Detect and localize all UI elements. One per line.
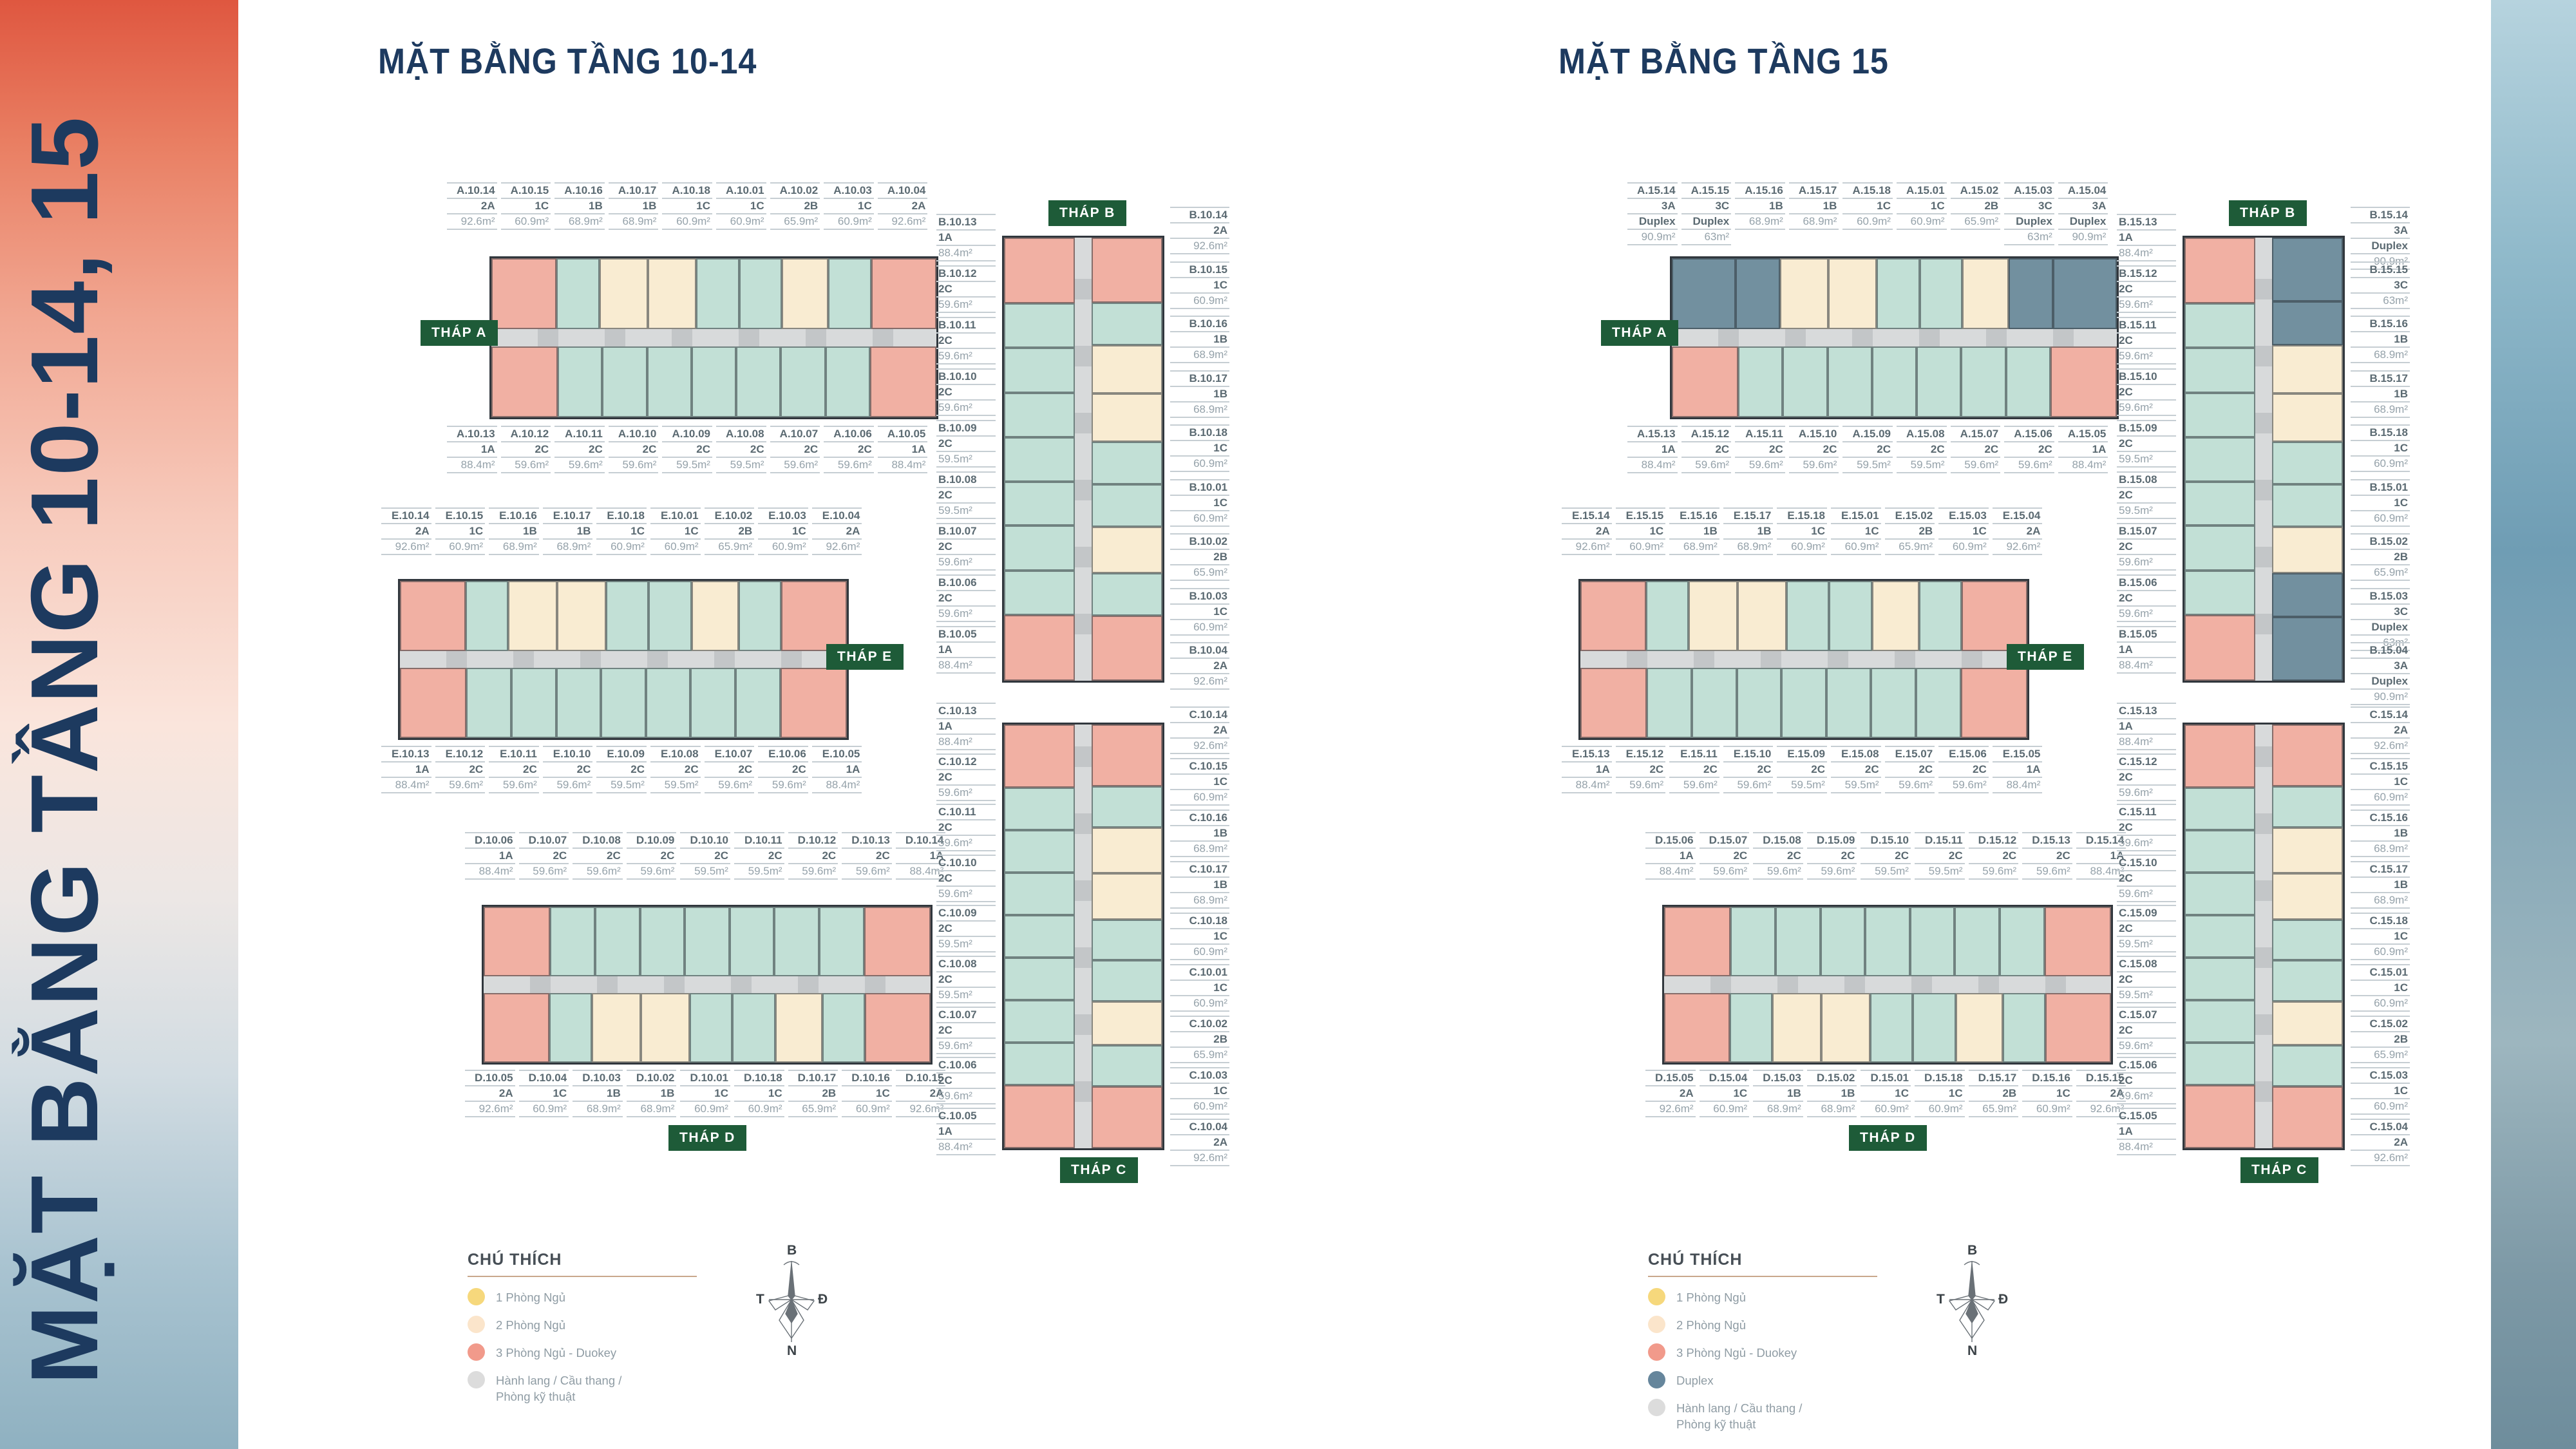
unit-id: B.10.06 — [936, 574, 996, 590]
unit-label: B.15.112C59.6m² — [2117, 317, 2176, 365]
unit-type: 2C — [2117, 538, 2176, 554]
unit-id: B.15.13 — [2117, 214, 2176, 229]
unit-label: C.15.102C59.6m² — [2117, 855, 2176, 902]
unit-area: 68.9m² — [1735, 213, 1785, 230]
unit-id: D.10.18 — [734, 1070, 784, 1085]
unit-area: 59.5m² — [1831, 777, 1881, 793]
unit-type: 1C — [1915, 1085, 1965, 1101]
unit-label: A.10.082C59.5m² — [716, 426, 766, 473]
unit-id: A.15.14 — [1627, 182, 1678, 198]
unit-id: C.15.15 — [2351, 758, 2410, 773]
plan-unit — [2184, 482, 2255, 526]
unit-label: B.15.131A88.4m² — [2117, 214, 2176, 261]
unit-area: 59.6m² — [936, 885, 996, 902]
unit-area: 59.6m² — [554, 457, 605, 473]
unit-type: 1A — [2117, 641, 2176, 657]
plan-unit — [1872, 346, 1917, 417]
unit-area: 60.9m² — [1842, 213, 1893, 230]
unit-label: D.15.132C59.6m² — [2022, 832, 2072, 880]
plan-unit — [557, 581, 606, 651]
unit-area: 59.6m² — [2117, 1088, 2176, 1104]
unit-label: E.10.151C60.9m² — [435, 507, 486, 555]
unit-type: 2C — [936, 590, 996, 605]
unit-id: E.15.17 — [1723, 507, 1774, 523]
legend-title: CHÚ THÍCH — [468, 1251, 777, 1269]
unit-area: 68.9m² — [2351, 840, 2410, 857]
tower-C-right-units — [2272, 724, 2343, 1148]
unit-area: 68.9m² — [543, 538, 593, 555]
plan-unit — [2045, 907, 2111, 976]
unit-type: 1C — [680, 1085, 730, 1101]
plan-unit — [2272, 573, 2343, 617]
unit-label: E.15.082C59.5m² — [1831, 746, 1881, 793]
unit-id: C.15.02 — [2351, 1016, 2410, 1031]
tower-badge-D: THÁP D — [1849, 1125, 1927, 1151]
unit-label: E.15.062C59.6m² — [1938, 746, 1989, 793]
unit-type: 2A — [1170, 1134, 1229, 1150]
unit-id: B.10.08 — [936, 471, 996, 487]
unit-area: 59.6m² — [936, 399, 996, 416]
compass-north-label: B — [1967, 1243, 1977, 1258]
unit-label: D.10.132C59.6m² — [842, 832, 892, 880]
unit-id: C.10.06 — [936, 1057, 996, 1072]
unit-id: D.15.07 — [1700, 832, 1750, 848]
unit-area: 88.4m² — [1993, 777, 2043, 793]
unit-label: A.15.102C59.6m² — [1789, 426, 1839, 473]
unit-label: E.15.022B65.9m² — [1885, 507, 1935, 555]
plan-unit — [1910, 907, 1955, 976]
unit-label: B.10.171B68.9m² — [1170, 370, 1229, 418]
plan-unit — [511, 668, 556, 738]
unit-id: C.15.17 — [2351, 861, 2410, 876]
legend-item: Duplex — [1648, 1371, 1714, 1388]
unit-id: E.15.18 — [1777, 507, 1827, 523]
unit-type: 2C — [519, 848, 569, 863]
unit-area: 92.6m² — [2351, 737, 2410, 754]
unit-type: 1C — [2351, 980, 2410, 995]
unit-type: 2B — [788, 1085, 838, 1101]
unit-label: D.15.112C59.5m² — [1915, 832, 1965, 880]
unit-label: E.15.092C59.5m² — [1777, 746, 1827, 793]
unit-label: A.15.051A88.4m² — [2058, 426, 2108, 473]
vertical-spread-title: MẶT BẰNG TẦNG 10-14, 15 — [10, 71, 120, 1385]
unit-type: 1A — [2117, 1123, 2176, 1139]
unit-type: 1A — [381, 761, 431, 777]
unit-area: 60.9m² — [1170, 1098, 1229, 1115]
unit-id: B.15.01 — [2351, 479, 2410, 495]
unit-type: 2C — [2117, 435, 2176, 451]
plan-unit — [2272, 1086, 2343, 1148]
legend-swatch — [468, 1371, 485, 1388]
unit-id: D.15.16 — [2022, 1070, 2072, 1085]
unit-area: 59.6m² — [936, 296, 996, 313]
floorplan-brochure-spread: MẶT BẰNG TẦNG 10-14, 15 MẶT BẰNG TẦNG 10… — [0, 0, 2576, 1449]
unit-area: 68.9m² — [2351, 401, 2410, 418]
unit-label: B.15.011C60.9m² — [2351, 479, 2410, 527]
unit-area: 60.9m² — [501, 213, 551, 230]
unit-id: B.10.11 — [936, 317, 996, 332]
unit-type: 2C — [1723, 761, 1774, 777]
tower-D-bottom-units — [484, 993, 931, 1063]
unit-label: B.10.022B65.9m² — [1170, 533, 1229, 581]
unit-type: 1C — [1170, 928, 1229, 943]
plan-unit — [2272, 960, 2343, 1001]
plan-unit — [865, 993, 931, 1063]
unit-type: 2C — [2117, 332, 2176, 348]
tower-A-top-units — [1672, 258, 2117, 329]
unit-area: 59.6m² — [2117, 885, 2176, 902]
plan-unit — [2272, 393, 2343, 442]
plan-unit — [1004, 482, 1075, 526]
unit-type: 2C — [1842, 441, 1893, 457]
plan-unit — [2184, 915, 2255, 958]
tower-B-right-units — [2272, 238, 2343, 681]
unit-id: B.10.04 — [1170, 642, 1229, 658]
corridor — [491, 329, 936, 346]
plan-unit — [1004, 830, 1075, 873]
unit-label: D.10.122C59.6m² — [788, 832, 838, 880]
legend: CHÚ THÍCH1 Phòng Ngủ2 Phòng Ngủ3 Phòng N… — [1648, 1251, 1957, 1277]
corridor — [2255, 238, 2273, 681]
unit-area: 60.9m² — [1897, 213, 1947, 230]
unit-area: 68.9m² — [554, 213, 605, 230]
unit-type: 2C — [2117, 920, 2176, 936]
unit-type: 1B — [543, 523, 593, 538]
plan-unit — [1865, 907, 1910, 976]
unit-id: E.10.01 — [650, 507, 701, 523]
unit-label: C.15.011C60.9m² — [2351, 964, 2410, 1012]
unit-area: 60.9m² — [2351, 943, 2410, 960]
unit-label: C.10.062C59.6m² — [936, 1057, 996, 1104]
unit-id: A.10.14 — [447, 182, 497, 198]
unit-area: 92.6m² — [465, 1101, 515, 1117]
tower-badge-C: THÁP C — [2240, 1157, 2318, 1183]
unit-label: D.10.041C60.9m² — [519, 1070, 569, 1117]
unit-area: 60.9m² — [1170, 455, 1229, 472]
unit-type: 2B — [1951, 198, 2001, 213]
unit-label: C.10.181C60.9m² — [1170, 913, 1229, 960]
tower-C-plan — [1002, 723, 1164, 1150]
unit-type: 2C — [2022, 848, 2072, 863]
unit-type: 2C — [2117, 590, 2176, 605]
unit-area: 88.4m² — [447, 457, 497, 473]
unit-area: 59.6m² — [2117, 399, 2176, 416]
unit-area: 59.6m² — [489, 777, 539, 793]
unit-id: C.10.03 — [1170, 1067, 1229, 1083]
unit-type: 2A — [812, 523, 862, 538]
unit-id: A.10.12 — [501, 426, 551, 441]
tower-A-plan — [1670, 256, 2119, 419]
unit-label: D.15.011C60.9m² — [1861, 1070, 1911, 1117]
unit-area: 92.6m² — [1170, 673, 1229, 690]
plan-unit — [692, 346, 736, 417]
unit-id: C.10.04 — [1170, 1119, 1229, 1134]
plan-unit — [1004, 393, 1075, 437]
plan-unit — [871, 258, 936, 329]
unit-id: B.15.12 — [2117, 265, 2176, 281]
unit-id: C.10.11 — [936, 804, 996, 819]
plan-unit — [2045, 993, 2111, 1063]
unit-area: 88.4m² — [936, 657, 996, 674]
unit-id: E.10.17 — [543, 507, 593, 523]
unit-label: B.10.092C59.5m² — [936, 420, 996, 468]
unit-id: C.15.14 — [2351, 706, 2410, 722]
unit-id: D.10.03 — [573, 1070, 623, 1085]
unit-id: E.15.14 — [1562, 507, 1612, 523]
unit-area: 60.9m² — [1861, 1101, 1911, 1117]
tower-D-plan — [1662, 905, 2113, 1065]
unit-label: A.10.102C59.6m² — [609, 426, 659, 473]
unit-label: C.10.051A88.4m² — [936, 1108, 996, 1155]
unit-id: C.15.01 — [2351, 964, 2410, 980]
unit-id: C.15.16 — [2351, 810, 2410, 825]
plan-unit — [1092, 1001, 1162, 1046]
unit-type: 2C — [596, 761, 647, 777]
unit-label: B.15.072C59.6m² — [2117, 523, 2176, 571]
plan-unit — [1772, 993, 1821, 1063]
unit-label: A.15.092C59.5m² — [1842, 426, 1893, 473]
unit-type: 2C — [770, 441, 820, 457]
plan-unit — [822, 993, 866, 1063]
unit-area: 59.6m² — [2004, 457, 2054, 473]
unit-id: D.15.02 — [1807, 1070, 1857, 1085]
plan-unit — [2184, 958, 2255, 1000]
unit-id: C.15.11 — [2117, 804, 2176, 819]
unit-area: 88.4m² — [2117, 734, 2176, 750]
unit-type: 1B — [1723, 523, 1774, 538]
unit-id: E.10.11 — [489, 746, 539, 761]
unit-area: 59.6m² — [435, 777, 486, 793]
plan-unit — [2184, 348, 2255, 392]
unit-label: D.10.102C59.5m² — [680, 832, 730, 880]
compass-south-label: N — [787, 1343, 797, 1358]
unit-area: 88.4m² — [2058, 457, 2108, 473]
plan-unit — [1092, 828, 1162, 874]
legend-item: Hành lang / Cầu thang / Phòng kỹ thuật — [1648, 1399, 1802, 1432]
unit-type: 1C — [1616, 523, 1666, 538]
unit-area: 59.6m² — [1951, 457, 2001, 473]
unit-label: E.15.161B68.9m² — [1669, 507, 1719, 555]
plan-unit — [774, 907, 819, 976]
unit-id: B.15.08 — [2117, 471, 2176, 487]
unit-id: A.10.13 — [447, 426, 497, 441]
plan-unit — [1004, 724, 1075, 788]
unit-area: 88.4m² — [936, 734, 996, 750]
unit-label: E.10.051A88.4m² — [812, 746, 862, 793]
unit-area: 60.9m² — [1170, 292, 1229, 309]
plan-unit — [1737, 668, 1782, 738]
corridor — [400, 651, 847, 668]
unit-area: 60.9m² — [824, 213, 874, 230]
unit-type: 2C — [2117, 281, 2176, 296]
plan-unit — [2184, 873, 2255, 915]
unit-area: 68.9m² — [1170, 892, 1229, 909]
plan-unit — [1004, 571, 1075, 615]
unit-id: B.15.09 — [2117, 420, 2176, 435]
unit-id: A.10.03 — [824, 182, 874, 198]
unit-area: 92.6m² — [1645, 1101, 1696, 1117]
compass-rose: B T Đ N — [753, 1242, 829, 1362]
plan-unit — [739, 581, 782, 651]
unit-id: B.10.03 — [1170, 588, 1229, 603]
unit-id: E.10.04 — [812, 507, 862, 523]
unit-label: D.10.011C60.9m² — [680, 1070, 730, 1117]
unit-type: 3C — [2004, 198, 2054, 213]
plan-unit — [2184, 238, 2255, 303]
unit-area: 92.6m² — [878, 213, 928, 230]
unit-label: A.15.171B68.9m² — [1789, 182, 1839, 230]
unit-label: E.15.171B68.9m² — [1723, 507, 1774, 555]
unit-id: A.15.02 — [1951, 182, 2001, 198]
plan-unit — [782, 258, 828, 329]
unit-label: D.10.112C59.5m² — [734, 832, 784, 880]
unit-label: B.10.131A88.4m² — [936, 214, 996, 261]
tower-A-bottom-units — [491, 346, 936, 417]
unit-type: 2C — [680, 848, 730, 863]
unit-type: 1A — [936, 229, 996, 245]
unit-id: E.10.02 — [705, 507, 755, 523]
unit-label: E.15.131A88.4m² — [1562, 746, 1612, 793]
unit-area: 59.5m² — [936, 451, 996, 468]
unit-type: 1C — [1700, 1085, 1750, 1101]
legend-item: Hành lang / Cầu thang / Phòng kỹ thuật — [468, 1371, 621, 1405]
plan-unit — [781, 581, 847, 651]
plan-unit — [2006, 346, 2050, 417]
plan-unit — [2184, 437, 2255, 482]
tower-E-plan — [398, 579, 849, 740]
plan-unit — [1092, 442, 1162, 484]
unit-label: A.15.033CDuplex63m² — [2004, 182, 2054, 245]
plan-unit — [647, 346, 692, 417]
tower-badge-C: THÁP C — [1060, 1157, 1138, 1183]
unit-label: D.10.052A92.6m² — [465, 1070, 515, 1117]
unit-area: 63m² — [2004, 229, 2054, 245]
unit-id: E.15.09 — [1777, 746, 1827, 761]
unit-id: D.15.09 — [1807, 832, 1857, 848]
unit-area: 59.6m² — [936, 348, 996, 365]
unit-label: B.10.042A92.6m² — [1170, 642, 1229, 690]
unit-type: 2C — [842, 848, 892, 863]
unit-label: A.10.051A88.4m² — [878, 426, 928, 473]
unit-area: 59.6m² — [1753, 863, 1803, 880]
unit-type: 2C — [758, 761, 808, 777]
unit-area: 59.6m² — [2117, 554, 2176, 571]
unit-type: 1C — [1861, 1085, 1911, 1101]
unit-type: 2C — [489, 761, 539, 777]
tower-badge-A: THÁP A — [1601, 320, 1678, 346]
unit-area: 92.6m² — [812, 538, 862, 555]
unit-id: E.10.12 — [435, 746, 486, 761]
unit-type: 2C — [1735, 441, 1785, 457]
unit-label: B.10.051A88.4m² — [936, 626, 996, 674]
unit-area: 59.6m² — [2022, 863, 2072, 880]
unit-area: 59.6m² — [1723, 777, 1774, 793]
unit-type: 2C — [662, 441, 712, 457]
unit-id: B.15.15 — [2351, 261, 2410, 277]
unit-id: C.10.10 — [936, 855, 996, 870]
tower-E-top-units — [400, 581, 847, 651]
unit-id: E.15.07 — [1885, 746, 1935, 761]
plan-unit — [1004, 526, 1075, 570]
unit-id: E.10.15 — [435, 507, 486, 523]
unit-area: 60.9m² — [435, 538, 486, 555]
unit-area: 88.4m² — [812, 777, 862, 793]
unit-id: D.10.01 — [680, 1070, 730, 1085]
unit-id: A.15.08 — [1897, 426, 1947, 441]
unit-type: 2C — [1789, 441, 1839, 457]
unit-type: 1C — [2022, 1085, 2072, 1101]
unit-type: 1C — [716, 198, 766, 213]
unit-type: 2C — [936, 538, 996, 554]
unit-type: 2C — [1616, 761, 1666, 777]
tower-E-bottom-units — [1580, 668, 2027, 738]
unit-label: C.15.151C60.9m² — [2351, 758, 2410, 806]
plan-unit — [1004, 1000, 1075, 1043]
unit-id: C.10.02 — [1170, 1016, 1229, 1031]
unit-area: 88.4m² — [936, 245, 996, 261]
unit-type: 1B — [1170, 825, 1229, 840]
plan-unit — [606, 581, 649, 651]
corridor — [484, 976, 931, 993]
unit-area: 65.9m² — [1170, 1046, 1229, 1063]
corridor — [1075, 724, 1092, 1148]
plan-unit — [550, 907, 595, 976]
unit-area: 59.6m² — [842, 863, 892, 880]
unit-id: B.15.06 — [2117, 574, 2176, 590]
unit-type: 2C — [936, 971, 996, 987]
unit-type: 2C — [1885, 761, 1935, 777]
unit-type: 2C — [716, 441, 766, 457]
unit-type: 1B — [1170, 876, 1229, 892]
unit-area: 59.6m² — [2117, 605, 2176, 622]
unit-id: D.15.01 — [1861, 1070, 1911, 1085]
unit-id: B.10.05 — [936, 626, 996, 641]
unit-id: D.15.08 — [1753, 832, 1803, 848]
tower-D-plan — [482, 905, 933, 1065]
unit-type: 2C — [435, 761, 486, 777]
unit-type: 1A — [1993, 761, 2043, 777]
unit-type: 1A — [812, 761, 862, 777]
tower-B-plan — [2183, 236, 2345, 683]
unit-type: 1C — [596, 523, 647, 538]
unit-id: D.10.06 — [465, 832, 515, 848]
unit-label: B.15.051A88.4m² — [2117, 626, 2176, 674]
plan-unit — [1961, 346, 2005, 417]
unit-area: 60.9m² — [1170, 943, 1229, 960]
plan-unit — [1646, 581, 1689, 651]
unit-area: 68.9m² — [1170, 401, 1229, 418]
unit-label: B.15.082C59.5m² — [2117, 471, 2176, 519]
unit-label: D.15.092C59.6m² — [1807, 832, 1857, 880]
unit-area: 88.4m² — [936, 1139, 996, 1155]
unit-area: 92.6m² — [1562, 538, 1612, 555]
unit-area: 68.9m² — [1753, 1101, 1803, 1117]
unit-label: B.15.102C59.6m² — [2117, 368, 2176, 416]
unit-type: 2A — [381, 523, 431, 538]
unit-label: A.15.122C59.6m² — [1681, 426, 1732, 473]
plan-unit — [685, 907, 730, 976]
plan-unit — [1092, 786, 1162, 827]
unit-type: 2C — [573, 848, 623, 863]
unit-label: E.10.072C59.6m² — [705, 746, 755, 793]
unit-area: 60.9m² — [2022, 1101, 2072, 1117]
unit-id: E.10.03 — [758, 507, 808, 523]
unit-type: 2C — [1915, 848, 1965, 863]
unit-area: 60.9m² — [1170, 789, 1229, 806]
unit-label: A.10.131A88.4m² — [447, 426, 497, 473]
plan-unit — [1092, 1045, 1162, 1086]
unit-duplex-tag: Duplex — [1627, 213, 1678, 229]
